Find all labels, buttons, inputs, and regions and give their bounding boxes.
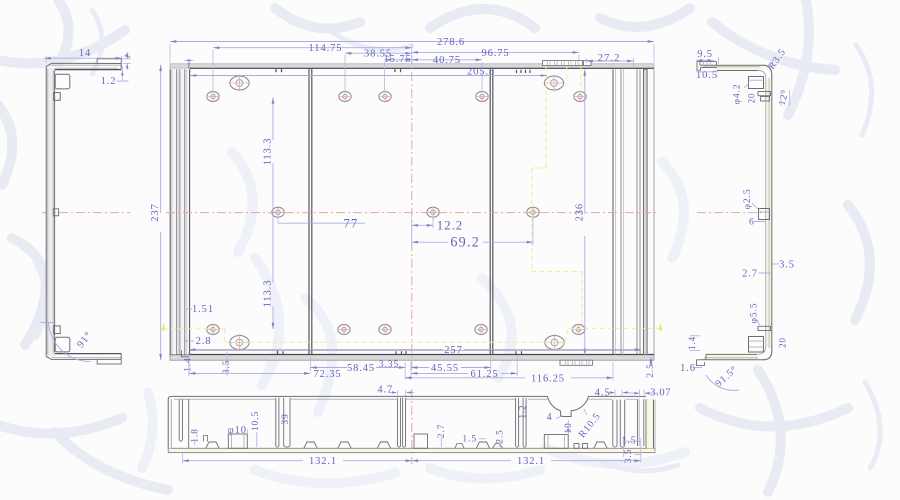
svg-text:40.75: 40.75	[433, 55, 461, 66]
svg-text:1.2: 1.2	[101, 76, 117, 87]
svg-text:3.35: 3.35	[379, 360, 399, 370]
svg-text:4: 4	[547, 412, 553, 423]
svg-text:205.8: 205.8	[467, 67, 495, 78]
svg-text:2.7: 2.7	[437, 424, 447, 439]
svg-text:10.5: 10.5	[251, 411, 261, 431]
svg-text:257: 257	[444, 345, 462, 356]
svg-text:1.2: 1.2	[518, 405, 528, 419]
svg-text:114.75: 114.75	[309, 43, 343, 54]
svg-text:113.3: 113.3	[262, 280, 273, 308]
svg-text:61.25: 61.25	[470, 369, 498, 380]
svg-text:15.75: 15.75	[383, 54, 411, 65]
svg-text:12.2: 12.2	[437, 218, 463, 232]
svg-text:3.5: 3.5	[779, 259, 795, 270]
svg-text:1.51: 1.51	[192, 304, 214, 315]
svg-text:φ2.5: φ2.5	[743, 189, 753, 210]
svg-text:1.4: 1.4	[687, 336, 697, 350]
svg-text:39: 39	[281, 413, 291, 424]
svg-text:116.25: 116.25	[531, 373, 565, 384]
svg-text:278.6: 278.6	[437, 37, 465, 48]
svg-text:2.7: 2.7	[742, 268, 758, 279]
svg-text:3.5: 3.5	[222, 360, 232, 375]
svg-text:4.5: 4.5	[595, 388, 611, 399]
svg-text:132.1: 132.1	[517, 456, 545, 467]
svg-text:R10.5: R10.5	[577, 411, 603, 440]
svg-text:10: 10	[564, 422, 574, 433]
svg-text:φ10: φ10	[228, 425, 247, 436]
svg-text:1.6: 1.6	[680, 363, 696, 374]
svg-text:2.5: 2.5	[646, 363, 656, 378]
svg-text:2.8: 2.8	[196, 336, 212, 347]
svg-text:236: 236	[574, 203, 585, 221]
svg-text:20: 20	[778, 337, 788, 348]
svg-text:φ4.2: φ4.2	[733, 84, 743, 105]
svg-text:6: 6	[749, 217, 755, 227]
svg-text:91°: 91°	[75, 330, 94, 350]
svg-text:96.75: 96.75	[481, 48, 509, 59]
svg-text:14: 14	[79, 48, 91, 59]
svg-text:φ5.5: φ5.5	[750, 303, 760, 324]
svg-text:9.5: 9.5	[697, 49, 713, 60]
svg-text:1.8: 1.8	[190, 428, 200, 443]
svg-text:58.45: 58.45	[347, 363, 375, 374]
svg-text:113.3: 113.3	[262, 138, 273, 166]
svg-text:45.55: 45.55	[431, 363, 459, 374]
svg-text:1.4: 1.4	[184, 357, 194, 372]
svg-text:77: 77	[344, 217, 359, 231]
svg-text:91.5°: 91.5°	[713, 364, 740, 390]
svg-text:1.5: 1.5	[462, 435, 477, 445]
svg-text:20: 20	[747, 93, 757, 104]
svg-text:72.35: 72.35	[313, 369, 341, 380]
svg-text:69.2: 69.2	[450, 234, 480, 250]
svg-text:2.5: 2.5	[495, 429, 505, 444]
svg-text:4.7: 4.7	[377, 384, 393, 395]
svg-text:27.2: 27.2	[598, 52, 621, 64]
svg-text:132.1: 132.1	[309, 456, 337, 467]
svg-text:237: 237	[150, 203, 161, 221]
